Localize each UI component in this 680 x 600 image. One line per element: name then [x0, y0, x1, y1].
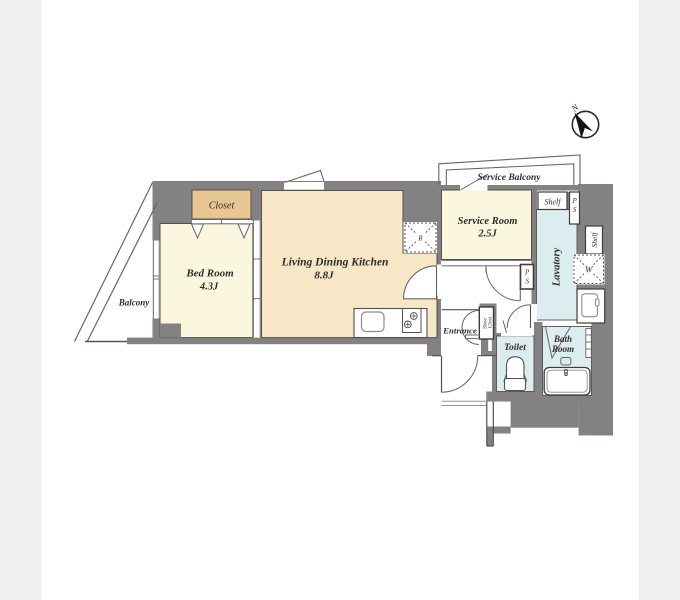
svg-text:Balcony: Balcony [118, 298, 151, 308]
svg-text:Lavatory: Lavatory [552, 247, 563, 287]
svg-text:Shelf: Shelf [545, 198, 563, 207]
svg-text:Entrance: Entrance [442, 326, 477, 336]
svg-text:Clost: Clost [488, 316, 494, 328]
svg-text:R: R [417, 235, 423, 243]
svg-text:Room: Room [551, 344, 574, 354]
svg-text:Bath: Bath [553, 334, 572, 344]
svg-text:Closet: Closet [209, 201, 235, 212]
svg-text:Service Room: Service Room [458, 216, 518, 227]
svg-text:8.8J: 8.8J [314, 270, 334, 282]
svg-text:P: P [524, 269, 530, 277]
svg-text:Living Dining Kitchen: Living Dining Kitchen [281, 257, 389, 269]
svg-text:S: S [525, 278, 529, 286]
svg-text:Service Balcony: Service Balcony [477, 173, 541, 183]
svg-text:S: S [573, 206, 577, 214]
svg-text:Shelf: Shelf [590, 232, 599, 248]
svg-text:P: P [571, 197, 577, 205]
svg-text:Bed Room: Bed Room [185, 268, 234, 280]
svg-text:2.5J: 2.5J [477, 229, 497, 240]
svg-text:Toilet: Toilet [504, 343, 526, 353]
svg-text:4.3J: 4.3J [199, 282, 219, 293]
